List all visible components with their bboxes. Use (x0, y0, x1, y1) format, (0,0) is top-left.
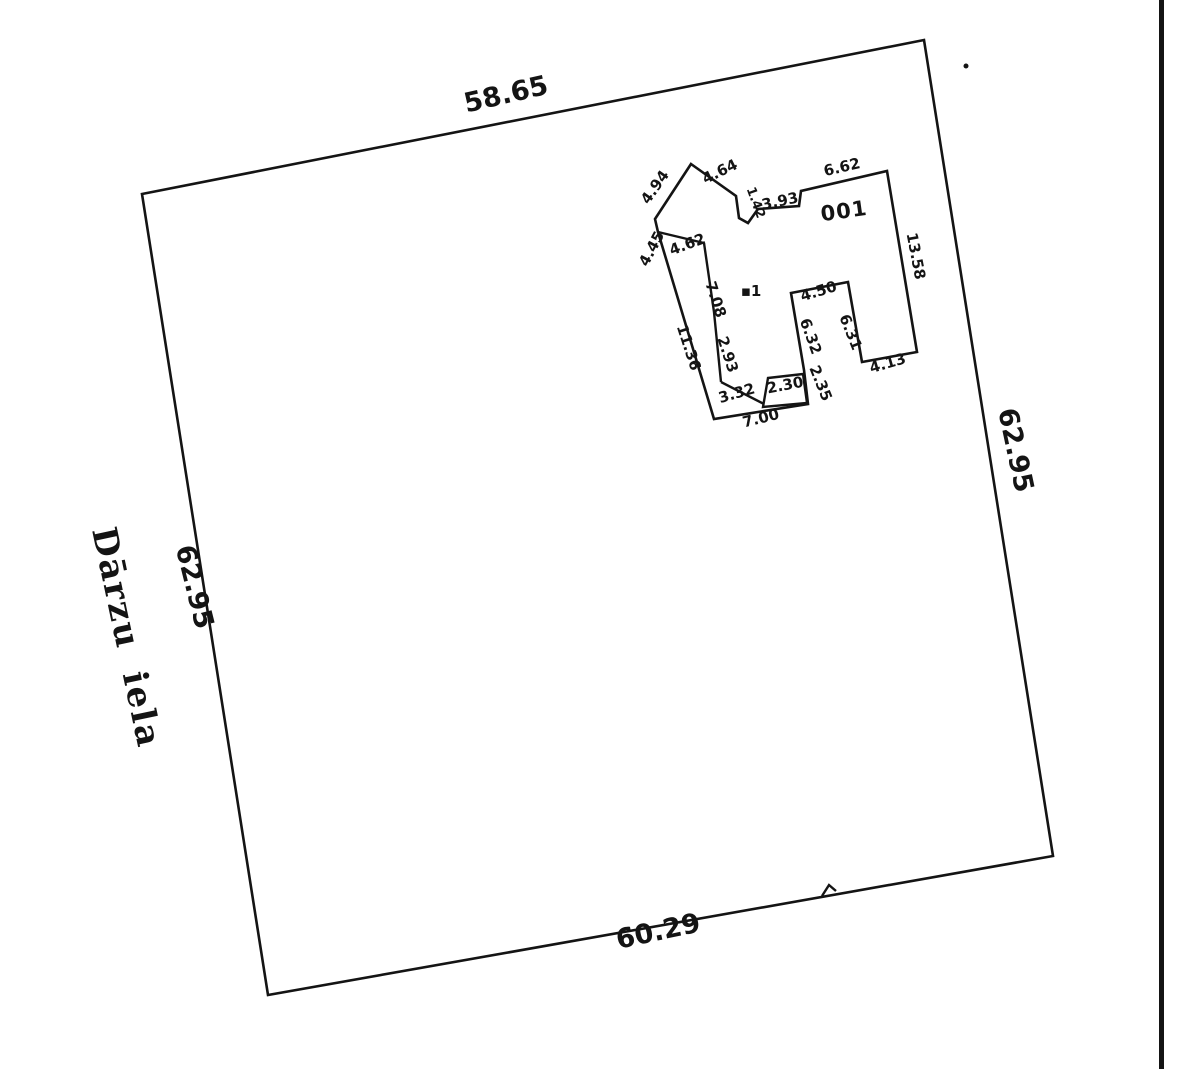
dimension-label: 7.08 (701, 279, 730, 320)
dimension-label: 4.64 (699, 155, 740, 187)
cadastral-plan-canvas: 58.65 62.95 60.29 62.95 Dārzu iela 001 ▪… (0, 0, 1200, 1069)
scan-dot (964, 64, 969, 69)
dimension-label: 4.13 (867, 349, 908, 377)
parcel-length-top: 58.65 (461, 70, 551, 119)
dimension-label: 13.58 (903, 231, 930, 281)
dimension-label: 6.62 (822, 154, 862, 180)
scanned-plan-page: 58.65 62.95 60.29 62.95 Dārzu iela 001 ▪… (0, 0, 1200, 1069)
dimension-label: 7.00 (741, 405, 781, 431)
dimension-label: 11.36 (673, 322, 705, 373)
dimension-label: 6.31 (835, 312, 866, 353)
parcel-length-bottom: 60.29 (613, 908, 703, 956)
parcel-length-left: 62.95 (169, 542, 220, 632)
dimension-label: 4.50 (798, 277, 839, 305)
parcel-boundary (142, 40, 1053, 995)
street-name-label: Dārzu iela (83, 524, 169, 752)
building-number-label: 001 (819, 196, 869, 226)
scan-edge-line (1159, 0, 1164, 1069)
dimension-label: 2.35 (805, 363, 836, 404)
parcel-length-right: 62.95 (991, 405, 1039, 495)
dimension-label: 4.62 (667, 230, 708, 260)
building-unit-label: ▪1 (741, 282, 762, 300)
dimension-label: 3.93 (760, 188, 800, 213)
